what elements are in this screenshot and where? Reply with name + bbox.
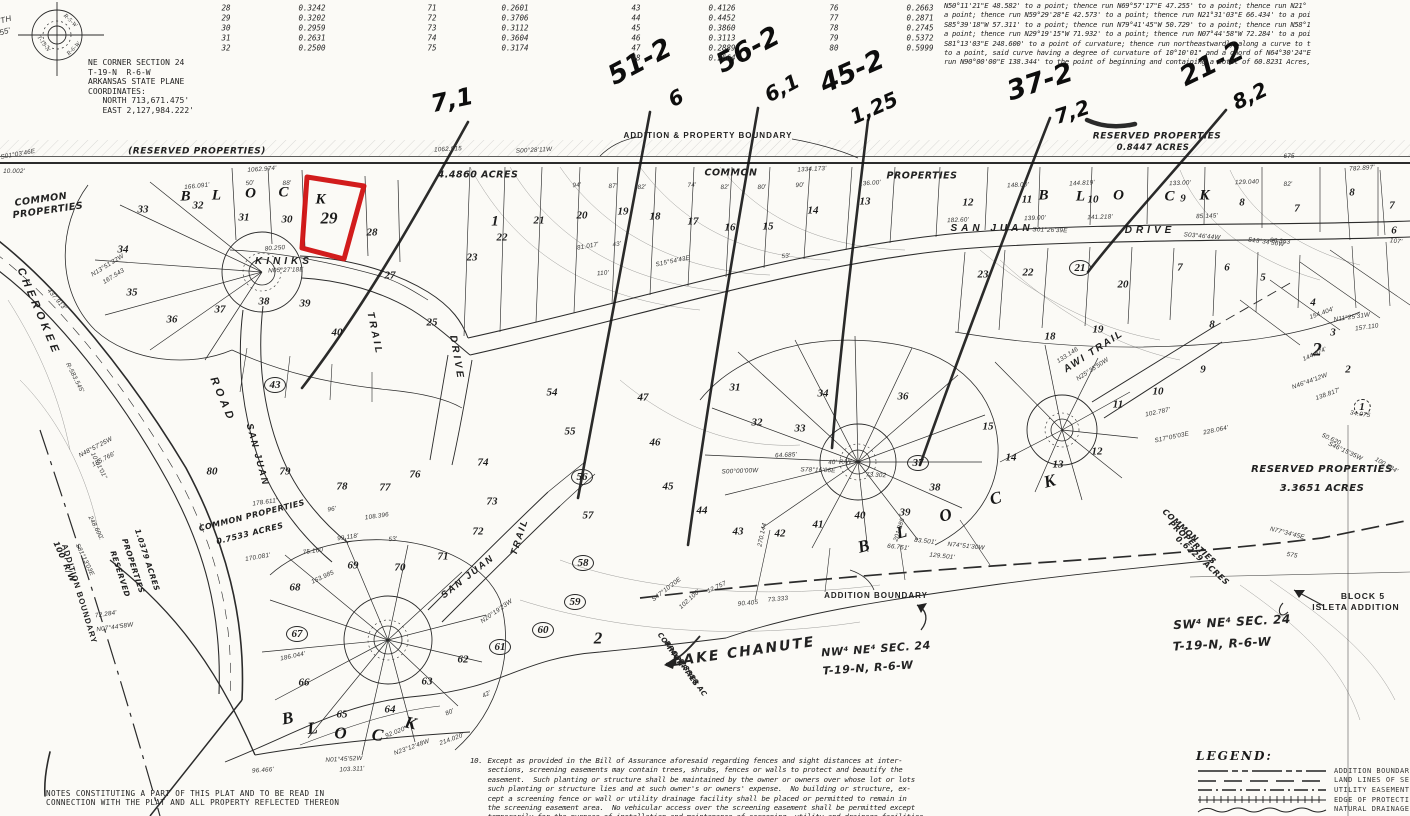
table-lot: 45 xyxy=(631,24,640,32)
dimension-label: 81.017' xyxy=(577,242,600,252)
circled-lot-number: 67 xyxy=(286,626,308,642)
block-letter: O xyxy=(334,725,347,742)
lot-number: 17 xyxy=(688,217,699,228)
dimension-label: 73.333 xyxy=(768,596,789,604)
lot-number: 34 xyxy=(818,389,829,400)
lot-number: 10 xyxy=(1153,387,1164,398)
lot-number: 9 xyxy=(1180,194,1186,205)
dimension-label: 85.145' xyxy=(1196,213,1218,220)
handwritten-code: 7,1 xyxy=(429,84,476,116)
metes-bounds-line: a point; thence run N59°29'28"E 42.573' … xyxy=(944,10,1310,19)
circled-lot-number: 61 xyxy=(489,639,511,655)
table-acreage: 0.2601 xyxy=(501,4,528,12)
compass-label: R-6-W xyxy=(66,41,82,57)
table-acreage: 0.2631 xyxy=(298,34,325,42)
area-label: T-19-N, R-6-W xyxy=(1172,635,1271,652)
table-lot: 78 xyxy=(829,24,838,32)
lot-number: 9 xyxy=(1200,365,1206,376)
lot-number: 66 xyxy=(299,678,310,689)
dimension-label: 228.064' xyxy=(1203,425,1229,436)
lot-number: 76 xyxy=(410,470,421,481)
dimension-label: N01°45'52W xyxy=(325,756,363,764)
plat-note-10: 10. Except as provided in the Bill of As… xyxy=(470,756,927,816)
lot-number: 74 xyxy=(478,458,489,469)
lot-number: 10 xyxy=(1088,195,1099,206)
corner-info-line: EAST 2,127,984.222' xyxy=(88,106,194,116)
table-lot: 30 xyxy=(221,24,230,32)
dimension-label: N77°34'45E xyxy=(1269,527,1305,542)
lot-number: 73 xyxy=(487,497,498,508)
dimension-label: 94' xyxy=(572,182,581,189)
legend-line-sample xyxy=(1196,776,1328,785)
lot-number: 22 xyxy=(1023,268,1034,279)
lot-number: 37 xyxy=(215,305,226,316)
table-lot: 76 xyxy=(829,4,838,12)
block-letter: B xyxy=(180,190,191,205)
lot-number: 15 xyxy=(983,422,994,433)
block-letter: B xyxy=(280,709,295,728)
lot-number: 30 xyxy=(282,215,293,226)
note-number: 10. xyxy=(470,756,482,816)
table-acreage: 0.2871 xyxy=(906,14,933,22)
metes-bounds-text: N50°11'21"E 48.582' to a point; thence r… xyxy=(944,1,1310,67)
lot-number: 62 xyxy=(458,655,469,666)
dimension-label: 10.002' xyxy=(3,169,25,175)
lot-number: 80 xyxy=(207,467,218,478)
area-label: 3.3651 ACRES xyxy=(1280,484,1365,494)
dimension-label: 110' xyxy=(597,270,610,277)
dimension-label: 166.091' xyxy=(184,183,210,192)
dimension-label: 186.044' xyxy=(280,651,306,662)
street-label: TRAIL xyxy=(364,311,383,357)
lot-number: 33 xyxy=(795,424,806,435)
lot-number: 72 xyxy=(473,527,484,538)
table-acreage: 0.3174 xyxy=(501,44,528,52)
table-acreage: 0.5999 xyxy=(906,44,933,52)
lot-number: 40 xyxy=(855,511,866,522)
street-label: SAN JUAN xyxy=(950,224,1033,234)
lot-number: 5 xyxy=(1260,273,1266,284)
lot-number: 3 xyxy=(1330,328,1336,339)
block-letter: C xyxy=(988,488,1004,508)
area-label: COMMON xyxy=(705,168,758,178)
map-labels-layer: 3334353632313029282737383940251222123201… xyxy=(0,0,1410,816)
lot-number: 21 xyxy=(534,216,545,227)
plat-notes-line: CONNECTION WITH THE PLAT AND ALL PROPERT… xyxy=(46,798,339,807)
block-letter: O xyxy=(1113,189,1125,204)
dimension-label: 675 xyxy=(1283,154,1294,160)
dimension-label: 80' xyxy=(757,185,766,192)
table-lot: 43 xyxy=(631,4,640,12)
circled-lot-number: 58 xyxy=(572,555,594,571)
dimension-label: 575 xyxy=(1286,552,1298,560)
corner-info-line: ARKANSAS STATE PLANE xyxy=(88,77,194,87)
lot-number: 14 xyxy=(1006,453,1017,464)
lot-number: 71 xyxy=(438,552,449,563)
corner-info-line: NORTH 713,671.475' xyxy=(88,96,194,106)
lot-number: 29 xyxy=(321,210,338,227)
dimension-label: 92.020' xyxy=(385,726,408,740)
area-label: NW⁴ NE⁴ SEC. 24 xyxy=(821,640,931,659)
lot-number: 39 xyxy=(300,299,311,310)
lot-number: 12 xyxy=(1092,447,1103,458)
area-label: ISLETA ADDITION xyxy=(1312,603,1399,612)
lot-number: 45 xyxy=(663,482,674,493)
dimension-label: 437.913' xyxy=(45,288,66,312)
dimension-label: S00°00'00W xyxy=(721,468,758,476)
area-label: 0.6229 ACRES xyxy=(1174,535,1231,587)
legend-item: LAND LINES OF SE xyxy=(1196,776,1410,786)
lot-number: 64 xyxy=(385,705,396,716)
legend-item-label: UTILITY EASEMENT xyxy=(1334,786,1409,794)
area-label: ADDITION BOUNDARY xyxy=(824,592,928,600)
lot-number: 69 xyxy=(348,561,359,572)
table-acreage: 0.3112 xyxy=(501,24,528,32)
table-lot: 31 xyxy=(221,34,230,42)
lot-number: 11 xyxy=(1022,195,1032,206)
lot-number: 36 xyxy=(167,315,178,326)
table-lot: 77 xyxy=(829,14,838,22)
lot-number: 38 xyxy=(259,297,270,308)
dimension-label: 214.020' xyxy=(439,733,465,748)
lot-number: 41 xyxy=(813,520,824,531)
lot-number: 7 xyxy=(1294,204,1300,215)
block-letter: C xyxy=(1164,190,1175,205)
lot-number: 18 xyxy=(1045,332,1056,343)
dimension-label: 144.819' xyxy=(1069,180,1095,188)
handwritten-note: 8,2 xyxy=(1229,79,1270,113)
legend: LEGEND: ADDITION BOUNDARLAND LINES OF SE… xyxy=(1196,749,1410,814)
legend-line-sample xyxy=(1196,766,1328,775)
dimension-label: 34.075 xyxy=(1349,410,1370,419)
block-letter: B xyxy=(856,536,872,556)
table-lot: 28 xyxy=(221,4,230,12)
table-lot: 71 xyxy=(427,4,436,12)
lot-number: 79 xyxy=(280,467,291,478)
table-acreage: 0.3706 xyxy=(501,14,528,22)
dimension-label: 55' xyxy=(0,27,11,38)
legend-item: ADDITION BOUNDAR xyxy=(1196,766,1410,776)
circled-lot-number: 21 xyxy=(1069,260,1091,276)
lot-number: 42 xyxy=(775,529,786,540)
dimension-label: 72.284' xyxy=(95,610,118,619)
table-lot: 44 xyxy=(631,14,640,22)
plat-map-sheet: 3334353632313029282737383940251222123201… xyxy=(0,0,1410,816)
table-acreage: 0.2663 xyxy=(906,4,933,12)
dimension-label: 53' xyxy=(388,536,397,543)
legend-line-sample xyxy=(1196,795,1328,804)
dimension-label: 74' xyxy=(687,183,696,190)
lot-number: 6 xyxy=(1224,263,1230,274)
lot-number: 33 xyxy=(138,205,149,216)
lot-number: 78 xyxy=(337,482,348,493)
corner-info-line: T-19-N R-6-W xyxy=(88,68,194,78)
dimension-label: 43' xyxy=(612,241,622,248)
legend-item-label: NATURAL DRAINAGE xyxy=(1334,805,1409,813)
circled-lot-number: 43 xyxy=(264,377,286,393)
block-letter: L xyxy=(307,719,320,737)
lot-number: 2 xyxy=(594,630,603,647)
dimension-label: 53' xyxy=(781,253,790,260)
area-label: PROPERTIES xyxy=(886,171,957,181)
lot-number: 25 xyxy=(427,318,438,329)
table-lot: 32 xyxy=(221,44,230,52)
block-letter: K xyxy=(1042,471,1058,491)
dimension-label: 88' xyxy=(282,181,291,188)
area-label: RESERVED PROPERTIES xyxy=(1251,465,1393,475)
dimension-label: 40' R/W xyxy=(828,459,852,466)
lot-number: 8 xyxy=(1209,320,1215,331)
lot-number: 20 xyxy=(577,211,588,222)
table-acreage: 0.2664 xyxy=(708,54,735,62)
metes-bounds-line: N50°11'21"E 48.582' to a point; thence r… xyxy=(944,1,1310,10)
lot-number: 11 xyxy=(1113,400,1123,411)
dimension-label: 103.311' xyxy=(339,766,364,774)
lot-number: 14 xyxy=(808,206,819,217)
lot-number: 38 xyxy=(930,483,941,494)
dimension-label: 75.160 xyxy=(302,547,323,556)
dimension-label: 90.405 xyxy=(738,600,759,608)
circled-lot-number: 59 xyxy=(564,594,586,610)
legend-item-label: ADDITION BOUNDAR xyxy=(1334,767,1409,775)
handwritten-note: 1,25 xyxy=(847,89,901,128)
dimension-label: 96' xyxy=(327,506,337,513)
dimension-label: 170.081' xyxy=(245,553,271,564)
lot-number: 36 xyxy=(898,392,909,403)
dimension-label: 138.817' xyxy=(1315,388,1341,403)
dimension-label: 182.60' xyxy=(947,217,969,224)
dimension-label: 50' xyxy=(245,180,254,187)
lot-number: 32 xyxy=(752,418,763,429)
legend-item: EDGE OF PROTECTI xyxy=(1196,795,1410,805)
dimension-label: 1334.173' xyxy=(797,166,827,174)
lot-number: 20 xyxy=(1118,280,1129,291)
lot-number: 77 xyxy=(380,483,391,494)
area-label: SW⁴ NE⁴ SEC. 24 xyxy=(1173,613,1291,631)
dimension-label: TH xyxy=(0,15,12,26)
legend-line-sample xyxy=(1196,805,1328,814)
legend-item-label: LAND LINES OF SE xyxy=(1334,776,1409,784)
lot-number: 47 xyxy=(638,393,649,404)
dimension-label: 80' xyxy=(445,708,456,717)
note-line: temporarily for the purpose of installat… xyxy=(487,812,927,816)
table-acreage: 0.2745 xyxy=(906,24,933,32)
metes-bounds-line: to a point, said curve having a degree o… xyxy=(944,48,1310,57)
street-label: ROAD xyxy=(207,376,236,425)
compass-label: R-5-W xyxy=(62,13,78,29)
dimension-label: 154.404' xyxy=(1309,307,1335,322)
dimension-label: 12.757 xyxy=(706,581,727,595)
compass-label: T-19-N xyxy=(35,35,50,53)
dimension-label: S03°46'44W xyxy=(1183,232,1220,241)
block-letter: K xyxy=(315,193,326,208)
area-label: T-19-N, R-6-W xyxy=(822,659,913,676)
dimension-label: 87' xyxy=(608,184,617,191)
block-letter: O xyxy=(937,505,954,525)
dimension-label: 42' xyxy=(482,690,493,700)
table-lot: 72 xyxy=(427,14,436,22)
lot-number: 7 xyxy=(1389,201,1395,212)
table-acreage: 0.3604 xyxy=(501,34,528,42)
legend-title: LEGEND: xyxy=(1196,749,1410,763)
dimension-label: 64.685' xyxy=(775,452,797,459)
dimension-label: 102.100' xyxy=(678,589,701,611)
dimension-label: 141.218' xyxy=(1087,214,1113,221)
lot-number: 63 xyxy=(422,677,433,688)
dimension-label: N05°27'18E xyxy=(268,267,304,275)
table-acreage: 0.2889 xyxy=(708,44,735,52)
dimension-label: 157.110 xyxy=(1355,323,1379,333)
lot-number: 8 xyxy=(1239,198,1245,209)
note-line: sections, screening easements may contai… xyxy=(487,765,927,774)
table-lot: 74 xyxy=(427,34,436,42)
dimension-label: S17°05'03E xyxy=(1154,431,1190,444)
dimension-label: 90' xyxy=(795,183,804,190)
area-label: (RESERVED PROPERTIES) xyxy=(128,148,266,157)
corner-info-line: NE CORNER SECTION 24 xyxy=(88,58,194,68)
dimension-label: N46°44'12W xyxy=(1291,373,1328,392)
lot-number: 55 xyxy=(565,427,576,438)
table-lot: 75 xyxy=(427,44,436,52)
dimension-label: 1062.974' xyxy=(247,166,277,174)
area-label: PROPERTIES xyxy=(1167,520,1217,567)
street-label: SAN JUAN xyxy=(244,423,270,488)
table-lot: 47 xyxy=(631,44,640,52)
dimension-label: 82' xyxy=(1283,182,1292,189)
table-lot: 73 xyxy=(427,24,436,32)
handwritten-note: 6 xyxy=(665,86,687,110)
lot-number: 22 xyxy=(497,233,508,244)
lot-number: 31 xyxy=(239,213,250,224)
dimension-label: 144.874' xyxy=(1302,347,1328,364)
corner-info: NE CORNER SECTION 24T-19-N R-6-WARKANSAS… xyxy=(88,58,194,116)
dimension-label: 108.396 xyxy=(365,512,390,522)
dimension-label: N11°25'31W xyxy=(1333,312,1370,323)
dimension-label: 66.751' xyxy=(887,544,909,553)
corner-info-line: COORDINATES: xyxy=(88,87,194,97)
street-label: DRIVE xyxy=(447,335,465,382)
lot-number: 13 xyxy=(1053,460,1064,471)
block-letter: L xyxy=(1076,190,1086,205)
metes-bounds-line: S85°39'18"W 57.311' to a point; thence r… xyxy=(944,20,1310,29)
block-letter: O xyxy=(245,187,257,202)
dimension-label: S47°10'20E xyxy=(651,577,683,604)
lot-number: 7 xyxy=(1177,263,1183,274)
table-acreage: 0.4452 xyxy=(708,14,735,22)
table-acreage: 0.3202 xyxy=(298,14,325,22)
table-lot: 46 xyxy=(631,34,640,42)
note-line: the screening easement area. No vehicula… xyxy=(487,803,927,812)
dimension-label: 129.501' xyxy=(929,553,955,562)
lot-number: 2 xyxy=(1345,365,1351,376)
note-line: easement. Such planting or structure sha… xyxy=(487,775,927,784)
table-acreage: 0.2959 xyxy=(298,24,325,32)
lot-number: 16 xyxy=(725,223,736,234)
dimension-label: 82' xyxy=(720,185,729,192)
lot-number: 6 xyxy=(1391,226,1397,237)
lot-number: 70 xyxy=(395,563,406,574)
dimension-label: S78°16'06E xyxy=(800,467,835,475)
lot-number: 19 xyxy=(1093,325,1104,336)
lot-number: 18 xyxy=(650,212,661,223)
table-acreage: 0.3113 xyxy=(708,34,735,42)
metes-bounds-line: a point; thence run N29°19'15"W 71.932' … xyxy=(944,29,1310,38)
dimension-label: S15°54'43E xyxy=(655,255,691,268)
lot-number: 23 xyxy=(467,253,478,264)
dimension-label: S00°28'11W xyxy=(516,147,553,155)
dimension-label: 102.787' xyxy=(1145,407,1171,418)
lot-number: 28 xyxy=(367,228,378,239)
legend-items: ADDITION BOUNDARLAND LINES OF SEUTILITY … xyxy=(1196,766,1410,814)
dimension-label: 148.00' xyxy=(1007,182,1029,189)
lot-number: 8 xyxy=(1349,188,1355,199)
lot-number: 46 xyxy=(650,438,661,449)
area-label: 0.8447 ACRES xyxy=(1117,144,1190,153)
table-lot: 48 xyxy=(631,54,640,62)
dimension-label: 73.302 xyxy=(866,472,887,479)
lot-number: 68 xyxy=(290,583,301,594)
block-letter: K xyxy=(1199,189,1210,204)
dimension-label: 1062.915 xyxy=(434,146,462,154)
dimension-label: R-583.545' xyxy=(64,362,84,394)
table-acreage: 0.3242 xyxy=(298,4,325,12)
street-label: CHEROKEE xyxy=(15,266,62,357)
circled-lot-number: 60 xyxy=(532,622,554,638)
handwritten-code: 45-2 xyxy=(816,46,889,98)
lot-number: 43 xyxy=(733,527,744,538)
circled-lot-number: 56 xyxy=(571,469,593,485)
dimension-label: 136.00' xyxy=(859,180,881,188)
street-label: DRIVE xyxy=(1125,226,1176,236)
table-lot: 79 xyxy=(829,34,838,42)
legend-line-sample xyxy=(1196,785,1328,794)
lot-number: 44 xyxy=(697,506,708,517)
lot-number: 19 xyxy=(618,207,629,218)
circled-lot-number: 37 xyxy=(907,455,929,471)
street-label: KINIKS xyxy=(255,257,313,267)
lot-number: 1 xyxy=(491,215,499,230)
dimension-label: N20°19'23W xyxy=(480,599,514,626)
dimension-label: S01°03'46E xyxy=(0,149,36,161)
metes-bounds-line: S81°13'03"E 248.600' to a point of curva… xyxy=(944,39,1310,48)
legend-item-label: EDGE OF PROTECTI xyxy=(1334,796,1409,804)
table-acreage: 0.4126 xyxy=(708,4,735,12)
block-letter: C xyxy=(278,186,289,201)
area-label: BLOCK 5 xyxy=(1341,592,1385,601)
dimension-label: 82' xyxy=(637,185,646,192)
block-letter: B xyxy=(1038,189,1049,204)
lot-number: 4 xyxy=(1310,298,1316,309)
dimension-label: 270.144 xyxy=(757,523,768,548)
area-label: RESERVED PROPERTIES xyxy=(1093,133,1221,142)
lot-number: 23 xyxy=(978,270,989,281)
dimension-label: 163.985 xyxy=(311,570,336,586)
lot-number: 15 xyxy=(763,222,774,233)
lot-number: 65 xyxy=(337,710,348,721)
handwritten-note: 6,1 xyxy=(761,71,802,106)
dimension-label: 139.00' xyxy=(1024,215,1046,222)
note-line: cept a screening fence or wall or utilit… xyxy=(487,794,927,803)
dimension-label: 99.118' xyxy=(337,533,359,542)
table-acreage: 0.2500 xyxy=(298,44,325,52)
metes-bounds-line: run N90°00'00"E 138.344' to the point of… xyxy=(944,57,1310,66)
lot-number: 27 xyxy=(385,271,396,282)
lot-number: 54 xyxy=(547,388,558,399)
lot-number: 32 xyxy=(193,201,204,212)
dimension-label: 107' xyxy=(1389,238,1402,246)
dimension-label: N74°51'30W xyxy=(947,542,985,552)
legend-item: NATURAL DRAINAGE xyxy=(1196,804,1410,814)
